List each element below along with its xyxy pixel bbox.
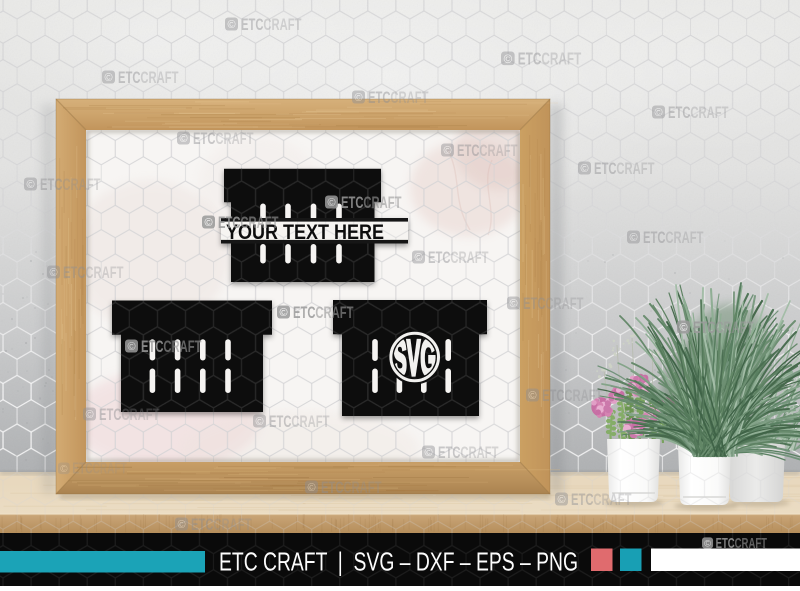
svg-text:ETCCRAFT: ETCCRAFT [141, 338, 202, 357]
svg-text:©: © [443, 145, 451, 157]
svg-text:ETCCRAFT: ETCCRAFT [218, 214, 279, 233]
svg-text:©: © [104, 72, 112, 84]
svg-text:©: © [509, 298, 517, 310]
svg-text:ETCCRAFT: ETCCRAFT [428, 249, 489, 268]
svg-text:ETCCRAFT: ETCCRAFT [518, 49, 582, 69]
svg-text:©: © [179, 133, 187, 145]
svg-text:ETCCRAFT: ETCCRAFT [716, 535, 768, 552]
svg-text:ETCCRAFT: ETCCRAFT [293, 304, 354, 323]
svg-text:©: © [354, 92, 362, 104]
svg-text:©: © [279, 307, 287, 319]
svg-text:ETCCRAFT: ETCCRAFT [693, 319, 754, 338]
svg-text:©: © [424, 447, 432, 459]
svg-text:ETCCRAFT: ETCCRAFT [241, 16, 302, 35]
svg-text:©: © [580, 163, 588, 175]
svg-text:©: © [414, 252, 422, 264]
svg-text:©: © [679, 322, 687, 334]
svg-text:©: © [227, 19, 235, 31]
svg-text:ETCCRAFT: ETCCRAFT [193, 130, 254, 149]
svg-text:ETCCRAFT: ETCCRAFT [118, 69, 179, 88]
svg-text:©: © [629, 232, 637, 244]
svg-text:©: © [49, 267, 57, 279]
svg-text:ETC CRAFT | SVG – DXF – EPS: ETC CRAFT | SVG – DXF – EPS – PNG [219, 547, 578, 577]
svg-text:ETCCRAFT: ETCCRAFT [523, 295, 584, 314]
svg-text:ETCCRAFT: ETCCRAFT [72, 460, 126, 478]
svg-text:ETCCRAFT: ETCCRAFT [191, 516, 252, 535]
svg-text:ETCCRAFT: ETCCRAFT [571, 491, 632, 510]
svg-text:©: © [177, 519, 185, 531]
svg-text:ETCCRAFT: ETCCRAFT [457, 142, 518, 161]
svg-text:ETCCRAFT: ETCCRAFT [63, 264, 124, 283]
svg-text:ETCCRAFT: ETCCRAFT [594, 160, 655, 179]
svg-text:©: © [204, 217, 212, 229]
svg-text:©: © [504, 54, 513, 66]
svg-text:©: © [255, 416, 263, 428]
svg-text:©: © [307, 482, 315, 494]
svg-text:©: © [704, 539, 711, 549]
svg-text:©: © [557, 494, 565, 506]
svg-text:©: © [60, 464, 68, 475]
svg-text:©: © [327, 197, 335, 209]
svg-text:ETCCRAFT: ETCCRAFT [438, 444, 499, 463]
svg-text:ETCCRAFT: ETCCRAFT [341, 194, 402, 213]
svg-text:ETCCRAFT: ETCCRAFT [99, 406, 160, 425]
svg-text:©: © [654, 107, 662, 119]
svg-text:©: © [127, 341, 135, 353]
svg-text:ETCCRAFT: ETCCRAFT [542, 387, 603, 406]
svg-text:ETCCRAFT: ETCCRAFT [368, 89, 429, 108]
svg-text:©: © [85, 409, 93, 421]
svg-text:ETCCRAFT: ETCCRAFT [643, 229, 704, 248]
svg-text:ETCCRAFT: ETCCRAFT [40, 176, 101, 195]
svg-text:ETCCRAFT: ETCCRAFT [321, 479, 382, 498]
svg-text:ETCCRAFT: ETCCRAFT [668, 104, 729, 123]
svg-text:©: © [528, 390, 536, 402]
svg-text:ETCCRAFT: ETCCRAFT [269, 413, 330, 432]
svg-text:©: © [26, 179, 34, 191]
